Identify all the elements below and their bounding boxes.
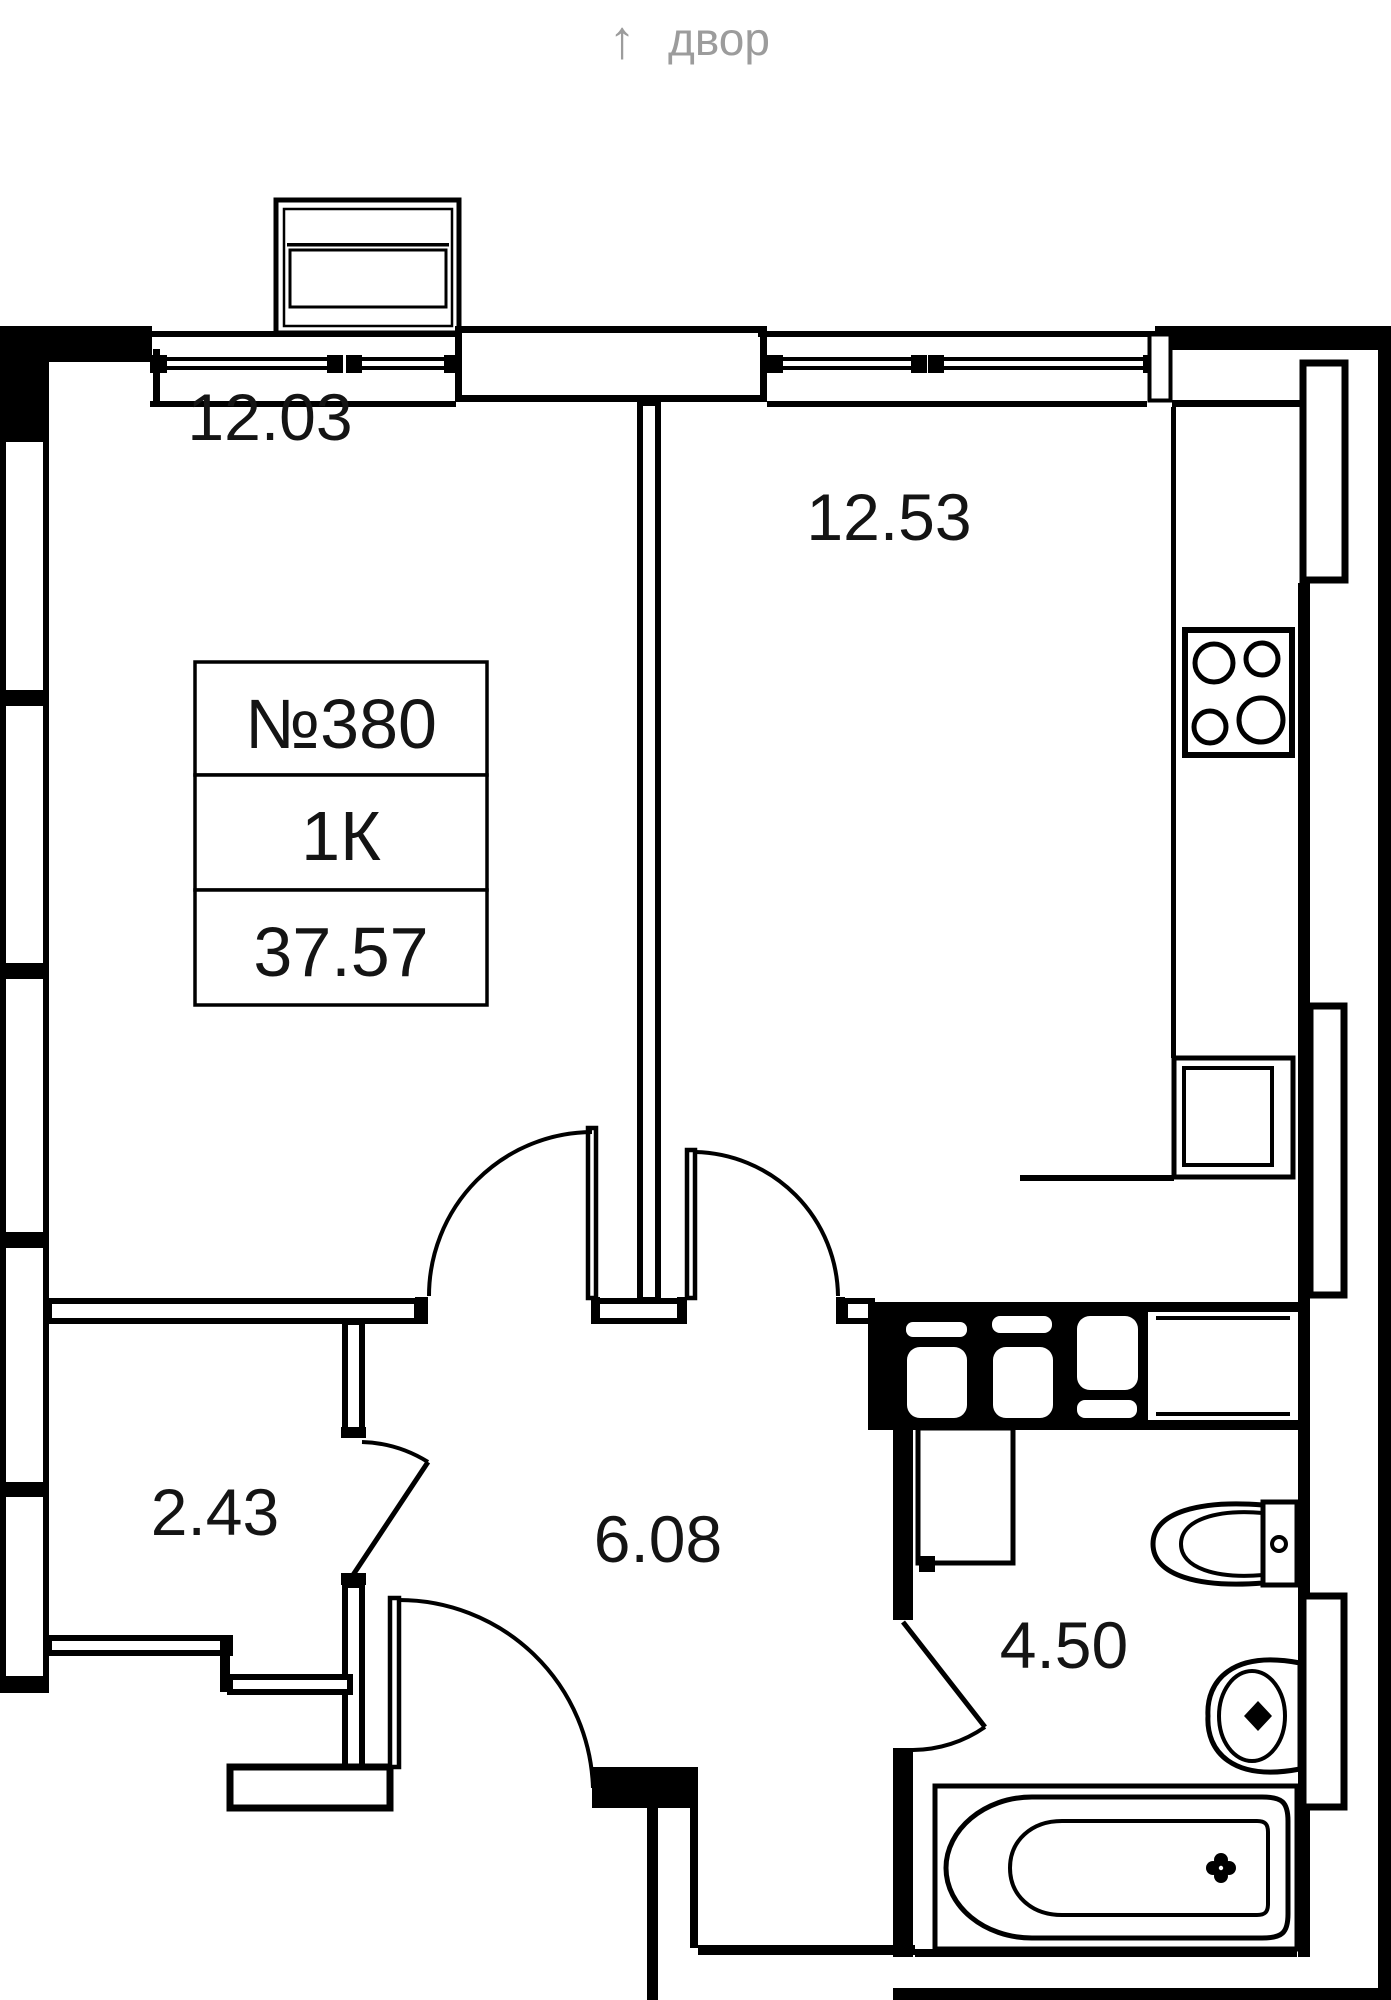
- entrance-door-leaf: [390, 1598, 399, 1767]
- toilet-icon: [1153, 1502, 1297, 1585]
- appliance-niche: [1148, 1302, 1298, 1430]
- courtyard-label: двор: [668, 13, 770, 65]
- bathtub-base-line: [915, 1949, 1297, 1957]
- apartment-info-table: №380 1К 37.57: [195, 662, 487, 1005]
- vent-shaft-middle: [1310, 1006, 1344, 1295]
- stove-icon: [1185, 630, 1292, 755]
- closet-door-leaf: [353, 1462, 428, 1575]
- partition-living-kitchen: [640, 403, 658, 1300]
- hall-top-wall: [49, 1128, 872, 1324]
- vent-shaft-bottom: [1303, 1596, 1344, 1807]
- bottom-outer-wall: [893, 1988, 1391, 2000]
- bathroom-door-leaf: [903, 1622, 985, 1727]
- wall-pier: [459, 330, 764, 399]
- apartment-layout: 1К: [301, 797, 381, 875]
- balcony-parapet: [276, 200, 459, 333]
- living-door-leaf: [588, 1128, 596, 1298]
- bathroom-door-arc: [913, 1727, 985, 1750]
- plumbing-block: [868, 1302, 1148, 1430]
- entrance-door-arc: [399, 1600, 593, 1788]
- right-outer-wall: [1378, 326, 1391, 2000]
- washbasin-icon: [1208, 1660, 1300, 1772]
- vent-shaft-top: [1303, 363, 1345, 580]
- wall-pier-right: [1150, 335, 1171, 401]
- north-arrow-icon: ↑: [609, 10, 636, 70]
- left-outer-wall: [0, 360, 49, 1692]
- kitchen-door-leaf: [687, 1150, 695, 1298]
- entrance: [230, 1598, 915, 2000]
- orientation-header: ↑ двор: [609, 10, 770, 70]
- kitchen-area-label: 12.53: [806, 480, 971, 554]
- kitchen-sink-icon: [1174, 1058, 1293, 1177]
- apartment-number: №380: [245, 685, 437, 763]
- apartment-total-area: 37.57: [253, 913, 428, 991]
- closet-area-label: 2.43: [151, 1475, 279, 1549]
- kitchen-counter: [1020, 407, 1176, 1181]
- hall-area-label: 6.08: [594, 1502, 722, 1576]
- bathroom-area-label: 4.50: [1000, 1608, 1128, 1682]
- living-area-label: 12.03: [187, 380, 352, 454]
- window-kitchen: [758, 331, 1162, 407]
- bathtub-icon: [935, 1786, 1297, 1949]
- closet-door-arc: [362, 1442, 428, 1462]
- bathroom-vent-box: [918, 1428, 1013, 1572]
- floor-plan: ↑ двор: [0, 0, 1391, 2000]
- floor-plan-page: ↑ двор: [0, 0, 1391, 2000]
- kitchen-door-arc: [695, 1152, 838, 1296]
- living-door-arc: [429, 1132, 592, 1296]
